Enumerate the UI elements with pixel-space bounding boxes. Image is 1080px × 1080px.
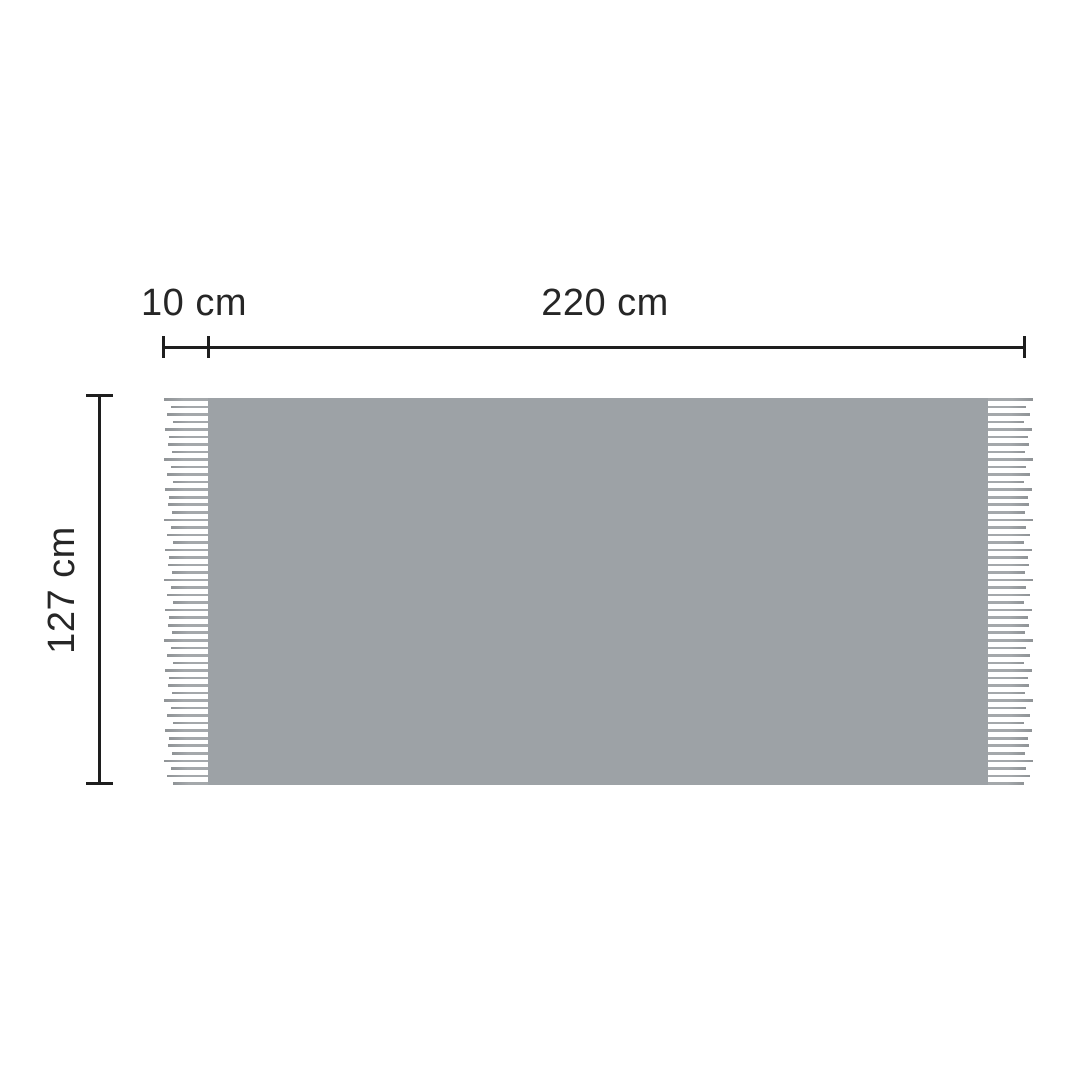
fringe-strand	[988, 398, 1033, 401]
fringe-strand	[165, 549, 208, 552]
fringe-strand	[173, 421, 208, 424]
fringe-strand	[988, 579, 1033, 582]
fringe-strand	[988, 616, 1028, 619]
fringe-strand	[171, 466, 208, 469]
fringe-strand	[988, 722, 1024, 725]
fringe-strand	[988, 549, 1032, 552]
fringe-strand	[164, 699, 208, 702]
fringe-right	[988, 398, 1033, 785]
fringe-strand	[988, 692, 1025, 695]
fringe-strand	[988, 458, 1033, 461]
fringe-strand	[164, 579, 208, 582]
fringe-strand	[172, 692, 208, 695]
fringe-strand	[173, 662, 208, 665]
fringe-strand	[172, 511, 208, 514]
fringe-strand	[988, 714, 1030, 717]
width-dimension-line	[162, 346, 1025, 349]
fringe-strand	[167, 413, 208, 416]
fringe-strand	[164, 458, 208, 461]
fringe-strand	[168, 443, 208, 446]
fringe-strand	[172, 631, 208, 634]
fringe-strand	[988, 601, 1024, 604]
fringe-strand	[988, 511, 1025, 514]
fringe-strand	[169, 436, 208, 439]
fringe-strand	[173, 782, 208, 785]
fringe-strand	[168, 503, 208, 506]
fringe-strand	[169, 496, 208, 499]
fringe-strand	[165, 669, 208, 672]
fringe-strand	[988, 677, 1028, 680]
fringe-strand	[165, 428, 208, 431]
fringe-strand	[988, 421, 1024, 424]
fringe-strand	[171, 526, 208, 529]
fringe-strand	[169, 737, 208, 740]
fringe-strand	[988, 451, 1025, 454]
fringe-strand	[988, 639, 1033, 642]
fringe-strand	[988, 760, 1033, 763]
fringe-strand	[988, 624, 1029, 627]
fringe-strand	[167, 594, 208, 597]
fringe-strand	[988, 744, 1029, 747]
fringe-strand	[988, 684, 1029, 687]
fringe-strand	[168, 744, 208, 747]
fringe-strand	[988, 519, 1033, 522]
fringe-strand	[988, 594, 1030, 597]
fringe-strand	[172, 571, 208, 574]
fringe-strand	[988, 699, 1033, 702]
fringe-width-label: 10 cm	[141, 283, 247, 325]
fringe-strand	[988, 586, 1026, 589]
fringe-strand	[988, 496, 1028, 499]
fringe-strand	[167, 473, 208, 476]
fringe-strand	[169, 556, 208, 559]
fringe-strand	[164, 519, 208, 522]
fringe-strand	[988, 669, 1032, 672]
fringe-left	[164, 398, 208, 785]
fringe-strand	[169, 616, 208, 619]
fringe-strand	[988, 473, 1030, 476]
fringe-strand	[167, 775, 208, 778]
fringe-strand	[171, 767, 208, 770]
fringe-strand	[172, 451, 208, 454]
fringe-strand	[173, 601, 208, 604]
fringe-strand	[167, 654, 208, 657]
fringe-strand	[988, 571, 1025, 574]
fringe-strand	[172, 752, 208, 755]
height-dimension-tick-top	[86, 394, 113, 397]
fringe-strand	[988, 541, 1024, 544]
fringe-strand	[171, 586, 208, 589]
fringe-strand	[988, 481, 1024, 484]
fringe-strand	[988, 436, 1028, 439]
fringe-strand	[988, 631, 1025, 634]
fringe-strand	[988, 534, 1030, 537]
fringe-strand	[173, 722, 208, 725]
fringe-strand	[988, 654, 1030, 657]
fringe-strand	[988, 406, 1026, 409]
fringe-strand	[988, 752, 1025, 755]
fringe-strand	[988, 737, 1028, 740]
fringe-strand	[167, 714, 208, 717]
fringe-strand	[164, 760, 208, 763]
width-dimension-tick-fringe-boundary	[207, 336, 210, 358]
fringe-strand	[168, 684, 208, 687]
fringe-strand	[988, 662, 1024, 665]
height-dimension-tick-bottom	[86, 782, 113, 785]
width-dimension-tick-left	[162, 336, 165, 358]
blanket-height-label: 127 cm	[42, 526, 84, 654]
fringe-strand	[168, 564, 208, 567]
fringe-strand	[164, 398, 208, 401]
fringe-strand	[165, 488, 208, 491]
fringe-strand	[988, 503, 1029, 506]
fringe-strand	[988, 782, 1024, 785]
fringe-strand	[171, 707, 208, 710]
fringe-strand	[988, 413, 1030, 416]
height-dimension-line	[98, 395, 101, 784]
fringe-strand	[988, 466, 1026, 469]
fringe-strand	[165, 729, 208, 732]
fringe-strand	[173, 481, 208, 484]
fringe-strand	[171, 406, 208, 409]
fringe-strand	[164, 639, 208, 642]
fringe-strand	[988, 556, 1028, 559]
fringe-strand	[988, 443, 1029, 446]
fringe-strand	[988, 707, 1026, 710]
fringe-strand	[168, 624, 208, 627]
fringe-strand	[167, 534, 208, 537]
fringe-strand	[988, 428, 1032, 431]
fringe-strand	[988, 729, 1032, 732]
fringe-strand	[165, 609, 208, 612]
fringe-strand	[171, 647, 208, 650]
fringe-strand	[988, 526, 1026, 529]
fringe-strand	[988, 647, 1026, 650]
fringe-strand	[988, 564, 1029, 567]
width-dimension-tick-right	[1023, 336, 1026, 358]
fringe-strand	[988, 609, 1032, 612]
fringe-strand	[169, 677, 208, 680]
blanket-body	[208, 398, 988, 785]
dimension-diagram: 10 cm 220 cm 127 cm	[0, 0, 1080, 1080]
blanket-width-label: 220 cm	[541, 283, 669, 325]
fringe-strand	[988, 775, 1030, 778]
fringe-strand	[988, 767, 1026, 770]
fringe-strand	[173, 541, 208, 544]
fringe-strand	[988, 488, 1032, 491]
